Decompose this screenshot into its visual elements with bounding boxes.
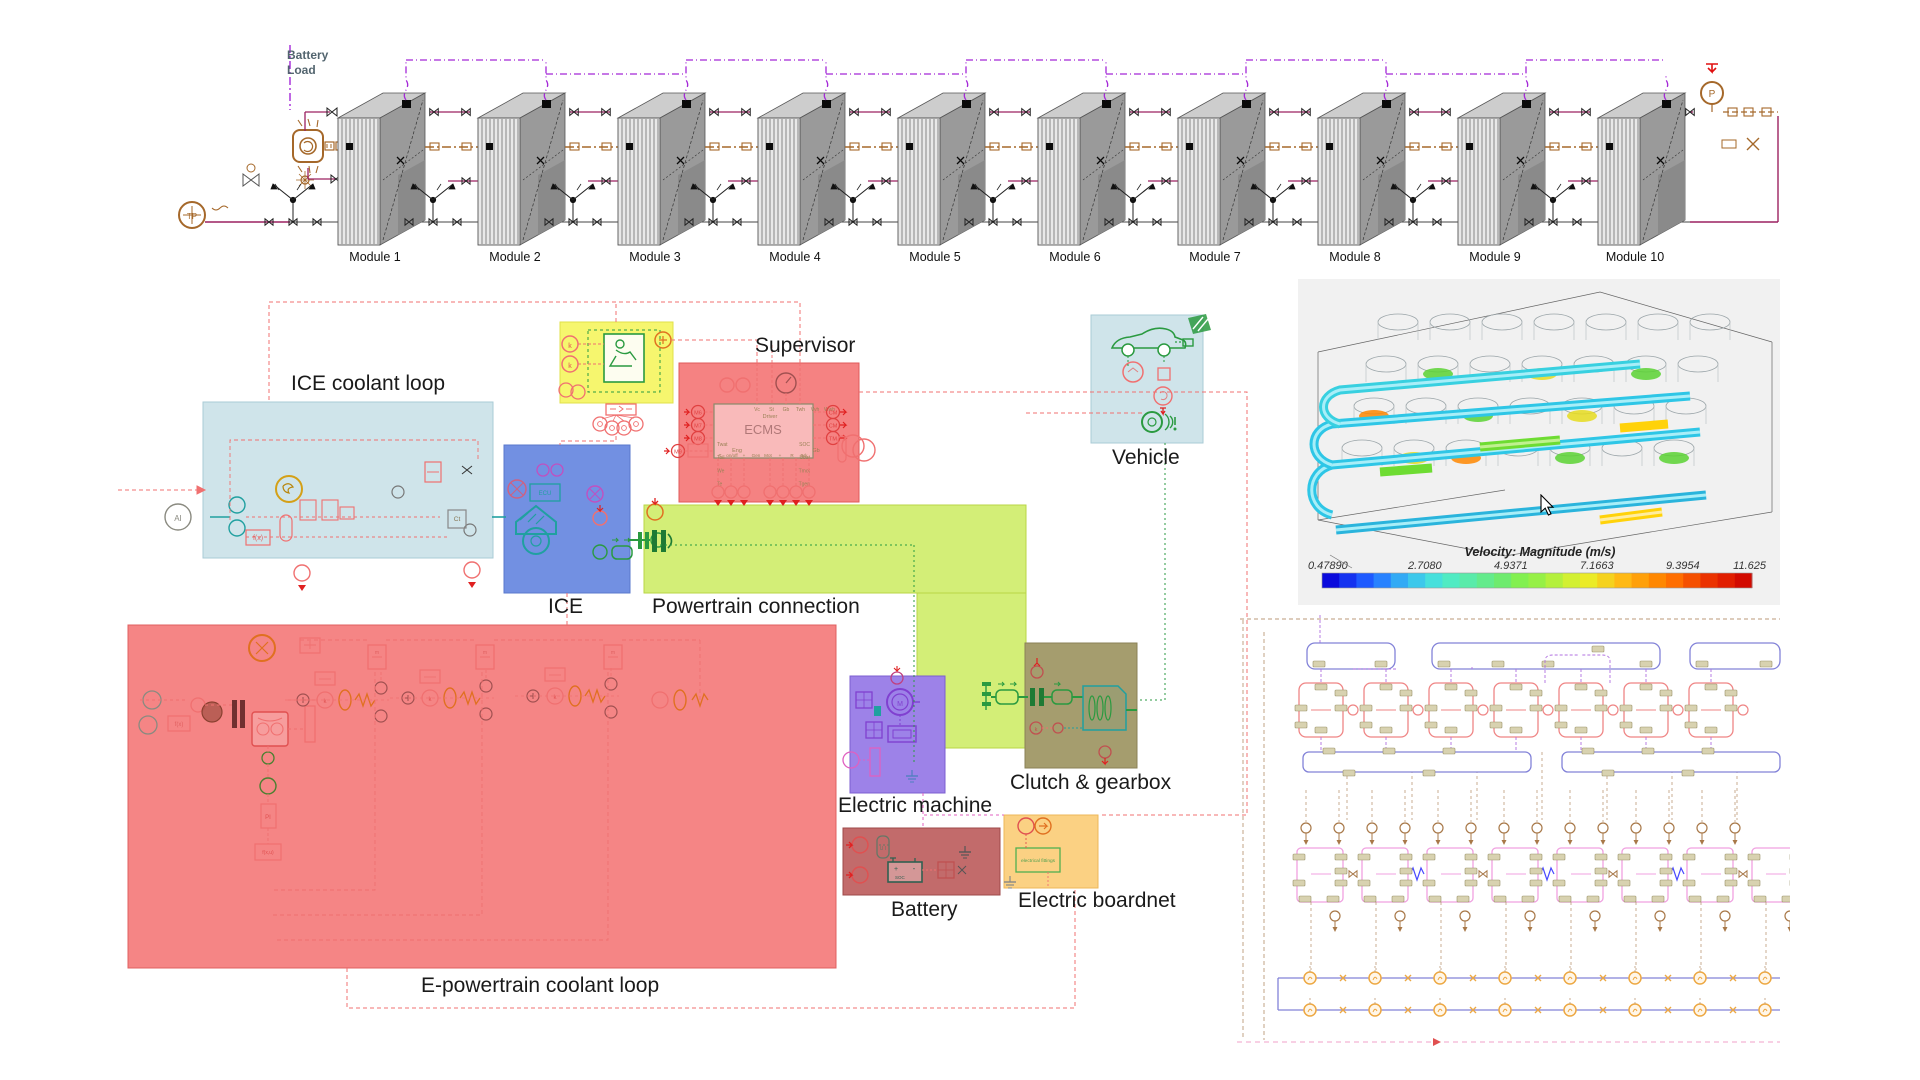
svg-text:Driver: Driver (763, 414, 778, 420)
region-epowertrain-coolant-loop (128, 625, 836, 968)
svg-text:Ct: Ct (454, 516, 461, 523)
svg-text:+: + (894, 866, 898, 873)
svg-text:Mot: Mot (764, 453, 772, 458)
region-label-electric-boardnet: Electric boardnet (1018, 889, 1176, 913)
svg-text:Gb: Gb (783, 407, 790, 413)
region-ice (504, 445, 630, 593)
region-label-epowertrain-coolant-loop: E-powertrain coolant loop (421, 974, 659, 998)
mouse-cursor (1540, 494, 1560, 518)
svg-text:M9: M9 (674, 450, 682, 456)
svg-text:M8: M8 (694, 437, 702, 443)
cfd-colorbar-tick: 4.9371 (1494, 560, 1528, 572)
cell-block (1494, 669, 1553, 820)
cfd-colorbar-tick: 0.47890 (1308, 560, 1349, 572)
pink-cell-block (1427, 848, 1487, 970)
svg-text:k: k (568, 363, 572, 370)
pressure-pump-symbol: P (1701, 64, 1778, 150)
module-label: Module 8 (1329, 250, 1380, 264)
svg-text:PI: PI (265, 815, 271, 821)
svg-text:m: m (611, 650, 615, 656)
cell-block (1299, 669, 1358, 820)
composite-figure: { "battery_chain": { "load_label": "Batt… (0, 0, 1920, 1080)
region-label-battery: Battery (891, 898, 958, 922)
region-label-powertrain-connection: Powertrain connection (652, 595, 860, 619)
svg-text:ECU: ECU (539, 491, 552, 497)
svg-text:SOC: SOC (799, 442, 810, 448)
svg-text:f(x): f(x) (175, 722, 184, 728)
region-label-vehicle: Vehicle (1112, 446, 1180, 470)
pink-cell-block (1492, 848, 1554, 970)
cfd-colorbar-tick: 9.3954 (1666, 560, 1700, 572)
cell-block (1559, 669, 1618, 820)
svg-text:AI: AI (174, 514, 182, 523)
svg-text:M7: M7 (694, 424, 702, 430)
svg-text:Twat: Twat (717, 442, 728, 448)
svg-text:-: - (913, 864, 916, 873)
svg-text:Twh: Twh (796, 407, 805, 413)
hybrid-powertrain-system-diagram: AIf(x)CtkkECMSDriverEngGbVcStGbTwhVvhWwh… (0, 260, 1260, 1050)
pink-cell-block (1687, 848, 1747, 970)
svg-text:TP: TP (187, 212, 197, 221)
battery-cell-network-diagram (1230, 615, 1790, 1055)
battery-module (1525, 74, 1694, 245)
pink-cell-block (1362, 848, 1424, 970)
svg-text:m: m (375, 650, 379, 656)
svg-text:electrical fittings: electrical fittings (1021, 858, 1056, 864)
cell-block (1624, 669, 1683, 820)
svg-text:f(x): f(x) (253, 535, 263, 542)
cfd-colorbar-tick: 7.1663 (1580, 560, 1615, 572)
pink-cell-block (1297, 848, 1357, 970)
svg-text:CM: CM (829, 411, 838, 417)
ecms-title: ECMS (744, 422, 782, 437)
svg-text:m: m (483, 650, 487, 656)
svg-text:Gen: Gen (752, 453, 761, 458)
pink-cell-block (1557, 848, 1617, 970)
region-label-clutch-gearbox: Clutch & gearbox (1010, 771, 1171, 795)
svg-text:k: k (1035, 727, 1038, 733)
module-label: Module 10 (1606, 250, 1664, 264)
cfd-title: Velocity: Magnitude (m/s) (1465, 545, 1616, 559)
pink-cell-block (1622, 848, 1684, 970)
region-vehicle (1091, 315, 1203, 443)
region-label-ice-coolant-loop: ICE coolant loop (291, 372, 445, 396)
svg-text:M: M (897, 701, 903, 708)
svg-text:M6: M6 (694, 411, 702, 417)
svg-text:Brk: Brk (801, 453, 809, 458)
cell-block (1689, 669, 1748, 820)
svg-text:Vc: Vc (754, 407, 760, 413)
svg-text:P: P (1709, 89, 1716, 100)
region-label-ice: ICE (548, 595, 583, 619)
battery-pack-chain-diagram: TPModule 1Module 2Module 3Module 4Module… (0, 0, 1920, 285)
svg-text:on/off: on/off (726, 453, 738, 458)
svg-text:f(x,u): f(x,u) (262, 850, 274, 856)
coolant-pump-tp: TP (179, 202, 228, 228)
svg-text:Gb: Gb (812, 448, 819, 454)
pink-cell-block (1752, 848, 1790, 970)
svg-text:+: + (779, 453, 782, 458)
cfd-velocity-panel: Velocity: Magnitude (m/s)0.478902.70804.… (1290, 272, 1790, 612)
svg-text:TM: TM (829, 437, 837, 443)
region-label-supervisor: Supervisor (755, 334, 855, 358)
svg-text:U I: U I (880, 846, 886, 852)
cfd-colorbar-tick: 11.625 (1733, 560, 1767, 572)
svg-text:CM: CM (829, 424, 838, 430)
battery-load-label: Battery Load (287, 48, 349, 78)
svg-text:T: T (719, 453, 722, 458)
cfd-colorbar-tick: 2.7080 (1407, 560, 1443, 572)
cell-block (1364, 669, 1423, 820)
svg-text:SOC: SOC (895, 875, 906, 880)
region-label-electric-machine: Electric machine (838, 794, 992, 818)
svg-text:Tgen: Tgen (799, 482, 811, 488)
svg-text:St: St (769, 407, 774, 413)
region-powertrain-connection (644, 505, 1026, 593)
module-label: Module 9 (1469, 250, 1520, 264)
svg-text:k: k (568, 343, 572, 350)
cell-network-symbols (1237, 615, 1790, 1046)
svg-text:+: + (743, 453, 746, 458)
